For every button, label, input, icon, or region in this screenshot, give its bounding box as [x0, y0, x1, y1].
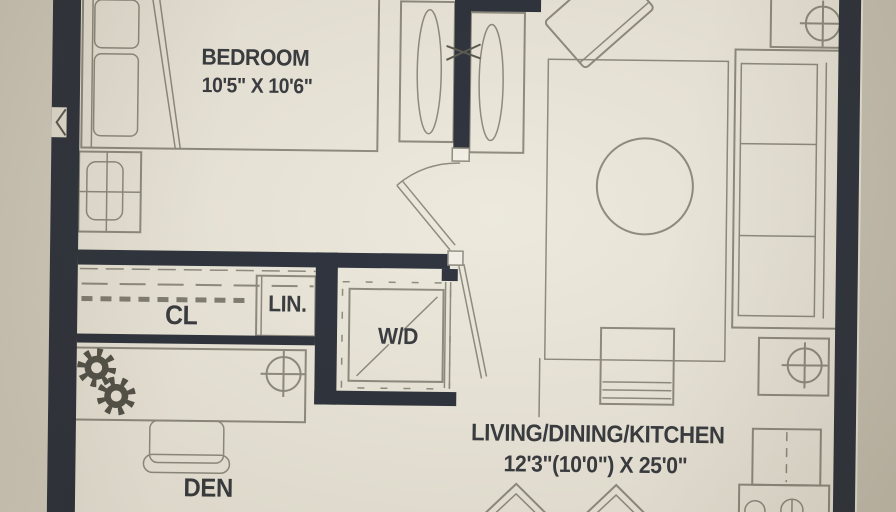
linen-closet-label: LIN. — [268, 290, 307, 317]
door-jamb-cap — [452, 148, 469, 161]
door-jamb-cap — [448, 251, 463, 265]
washer-dryer-label: W/D — [378, 323, 418, 350]
floor-plan: BEDROOM 10'5" X 10'6" CL LIN. W/D LIVING… — [0, 0, 896, 512]
living-label: LIVING/DINING/KITCHEN — [471, 419, 725, 450]
wall-bedroom-divider — [453, 0, 471, 150]
floor-plan-geometry — [0, 0, 896, 512]
living-dimensions: 12'3"(10'0") X 25'0" — [503, 450, 687, 479]
wall-laundry-bottom — [314, 390, 456, 406]
closet-label: CL — [165, 300, 198, 331]
den-label: DEN — [183, 472, 233, 504]
kitchen-counter-line — [539, 358, 540, 417]
window-marker — [51, 107, 66, 137]
wall-laundry-jamb — [442, 269, 458, 281]
bedroom-label: BEDROOM — [201, 43, 309, 71]
photo-rotation-wrapper: BEDROOM 10'5" X 10'6" CL LIN. W/D LIVING… — [0, 0, 896, 512]
bedroom-dimensions: 10'5" X 10'6" — [202, 74, 313, 99]
wall-laundry-left — [314, 252, 338, 404]
floor-plan-drawing: BEDROOM 10'5" X 10'6" CL LIN. W/D LIVING… — [0, 0, 896, 512]
